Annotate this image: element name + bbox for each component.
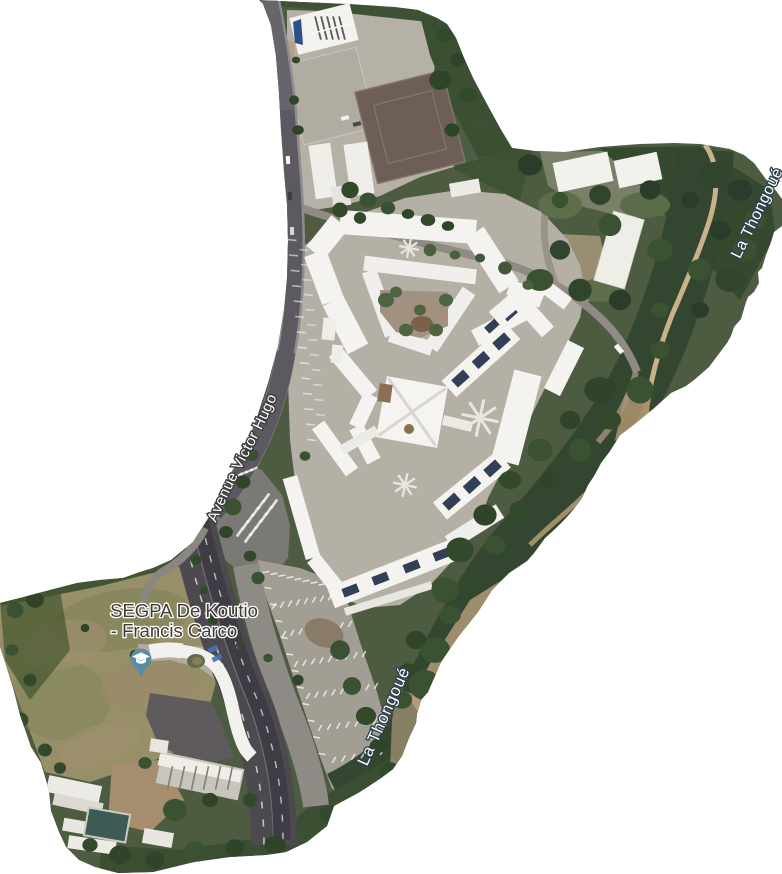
svg-text:SEGPA De Koutio: SEGPA De Koutio — [110, 600, 258, 621]
svg-text:- Francis Carco: - Francis Carco — [111, 620, 237, 641]
